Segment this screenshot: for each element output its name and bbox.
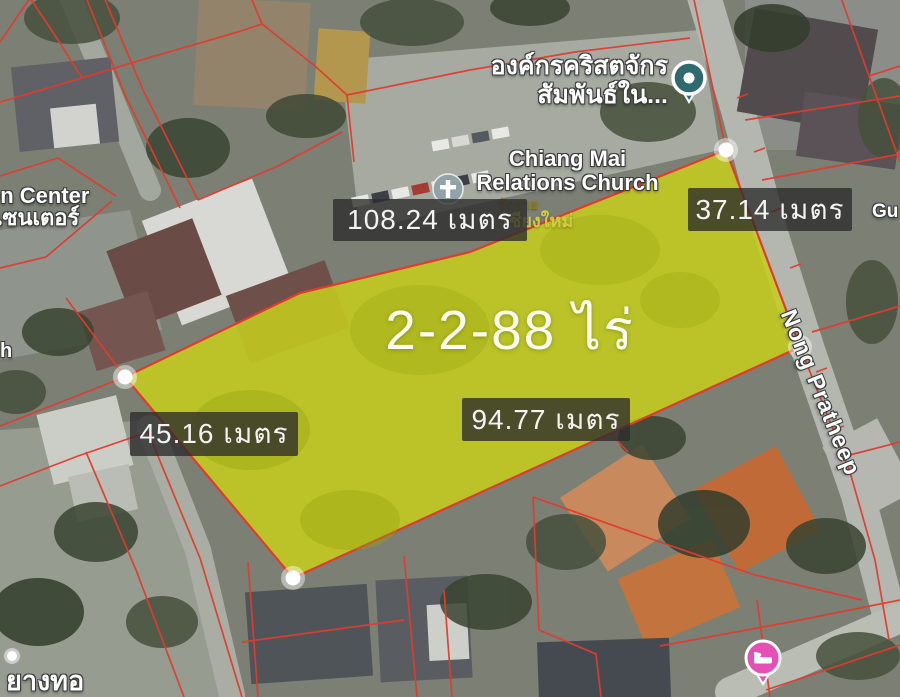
poi-church-line1: Chiang Mai (445, 147, 690, 171)
measurement-left: 45.16 เมตร (130, 412, 298, 456)
poi-organization-label: องค์กรคริสตจักร สัมพันธ์ใน... (420, 52, 668, 110)
poi-center-line2: เซนเตอร์ (0, 206, 79, 229)
satellite-map: องค์กรคริสตจักร สัมพันธ์ใน... Chiang Mai… (0, 0, 900, 697)
partial-label-left: h (0, 341, 12, 362)
poi-church-label: Chiang Mai Relations Church (445, 147, 690, 195)
poi-church-line2: Relations Church (445, 171, 690, 195)
partial-label-bottom: ยางทอ (6, 667, 84, 695)
plot-area-label: 2-2-88 ไร่ (375, 302, 645, 360)
poi-organization-line1: องค์กรคริสตจักร (420, 52, 668, 81)
poi-organization-line2: สัมพันธ์ใน... (420, 81, 668, 110)
poi-center-line1: en Center (0, 184, 89, 207)
partial-label-right: Gu (872, 202, 898, 222)
measurement-right: 37.14 เมตร (688, 188, 852, 231)
measurement-top: 108.24 เมตร (333, 199, 527, 241)
measurement-bottom: 94.77 เมตร (462, 398, 630, 441)
